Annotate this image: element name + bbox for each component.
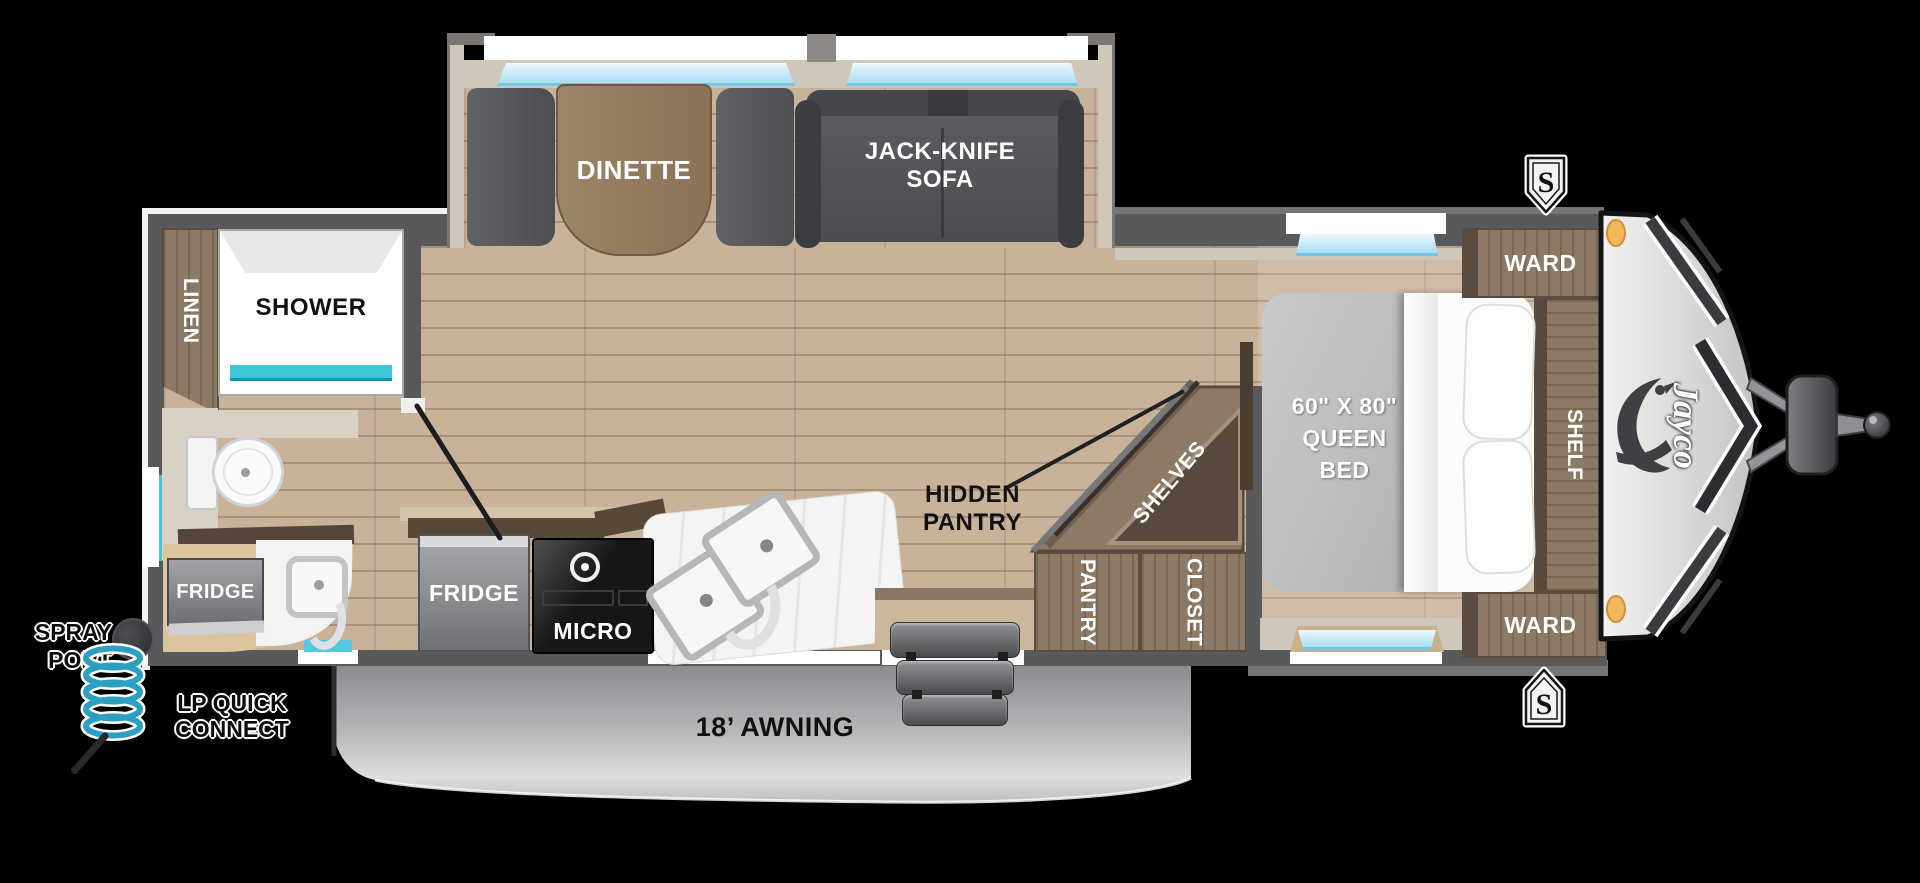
- front-cap: [1590, 200, 1920, 660]
- bed-pillow-bottom: [1462, 439, 1537, 575]
- slideout-window-right-glass: [846, 63, 1078, 86]
- bedroom-window-top-glass: [1296, 234, 1438, 256]
- bath-window-bottom-trim: [298, 650, 358, 664]
- wardrobe-bottom-label: WARD: [1492, 612, 1576, 639]
- shower-label-box: SHOWER: [230, 293, 392, 323]
- speaker-badge-bottom-letter: S: [1536, 688, 1553, 721]
- bedroom-window-lower-trim: [1290, 652, 1442, 664]
- bath-floor-strip: [218, 410, 358, 438]
- wardrobe-bottom-edge: [1464, 594, 1478, 656]
- micro-label: MICRO: [553, 618, 632, 645]
- hitch-assembly: [1747, 376, 1890, 474]
- lp-line2: CONNECT: [152, 716, 312, 742]
- pantry-cabinet: PANTRY: [1034, 552, 1140, 652]
- dinette-table: DINETTE: [556, 84, 712, 256]
- shelf-board-edge: [1536, 300, 1547, 590]
- step-tab-2: [998, 652, 1008, 661]
- bed-label-bed: BED: [1319, 454, 1369, 486]
- lp-quick-connect-label: LP QUICK CONNECT: [152, 690, 312, 742]
- linen-cabinet: LINEN: [162, 228, 219, 414]
- kitchen-fridge-label: FRIDGE: [429, 580, 519, 607]
- bed-label-box: 60" X 80" QUEEN BED: [1272, 388, 1417, 488]
- step-tab-4: [992, 690, 1002, 699]
- sofa-label-line1: JACK-KNIFE: [865, 138, 1015, 166]
- slideout-wall-right: [1098, 33, 1115, 248]
- pantry-label: PANTRY: [1075, 559, 1099, 646]
- propane-cover: [1787, 376, 1837, 474]
- marker-light-bottom: [1607, 596, 1625, 622]
- sink-drain-left: [697, 591, 715, 609]
- hidden-pantry-label: HIDDEN PANTRY: [915, 481, 1030, 537]
- marker-light-top: [1607, 220, 1625, 246]
- griddle-slot-left: [542, 590, 614, 606]
- toilet-bowl: [212, 437, 284, 507]
- slideout-wall-left: [447, 33, 464, 248]
- step-tab-1: [906, 652, 916, 661]
- burner-icon: [570, 552, 600, 582]
- wardrobe-top: WARD: [1462, 228, 1607, 298]
- slideout-window-left-glass: [497, 63, 795, 86]
- bath-door-jamb: [401, 398, 425, 413]
- kitchen-fridge-top-trim: [420, 536, 528, 547]
- jayco-logo-text: Jayco: [1662, 356, 1710, 496]
- wardrobe-bottom: WARD: [1462, 592, 1607, 658]
- shower-threshold: [230, 365, 392, 381]
- hidden-pantry-line1: HIDDEN: [925, 481, 1020, 509]
- griddle-slot-right: [618, 590, 648, 606]
- bed-label-size: 60" X 80": [1292, 390, 1398, 422]
- range-micro: MICRO: [532, 538, 654, 654]
- closet-cabinet: CLOSET: [1140, 552, 1247, 652]
- bath-window-left-trim: [143, 467, 159, 567]
- bed-side-board: [1240, 342, 1253, 490]
- dinette-bench-left: [467, 88, 555, 246]
- bedroom-window-top-trim: [1286, 213, 1446, 234]
- dinette-bench-right: [716, 88, 794, 246]
- lp-line1: LP QUICK: [152, 690, 312, 716]
- floorplan-canvas: 18’ AWNING DINETTE JACK-KNIFE SOFA: [0, 0, 1920, 883]
- dinette-label: DINETTE: [577, 155, 692, 186]
- speaker-badge-top-letter: S: [1538, 166, 1555, 199]
- sofa-arm-right: [1058, 100, 1084, 248]
- toilet-drain: [241, 468, 250, 477]
- shower-label: SHOWER: [256, 294, 367, 322]
- burner-center: [581, 563, 589, 571]
- lp-hose-coil-icon: [55, 640, 165, 780]
- bath-fridge-label: FRIDGE: [176, 581, 255, 604]
- bed-label-queen: QUEEN: [1302, 422, 1386, 454]
- sofa-arm-left: [795, 100, 821, 248]
- wardrobe-top-label: WARD: [1492, 250, 1576, 277]
- shower: SHOWER: [218, 229, 404, 396]
- kitchen-fridge: FRIDGE: [418, 534, 530, 652]
- bed-pillow-top: [1462, 303, 1537, 441]
- hitch-ball: [1864, 412, 1890, 438]
- sofa-label: JACK-KNIFE SOFA: [850, 136, 1030, 196]
- bath-fridge: FRIDGE: [167, 558, 264, 626]
- shelf-label: SHELF: [1552, 409, 1586, 480]
- bath-wall: [404, 229, 421, 401]
- speaker-badge-top: S: [1524, 154, 1568, 218]
- awning-label: 18’ AWNING: [650, 712, 900, 742]
- speaker-badge-bottom: S: [1522, 664, 1566, 728]
- hidden-pantry-line2: PANTRY: [923, 509, 1022, 537]
- sink-drain-right: [758, 537, 776, 555]
- shower-bevel: [220, 231, 402, 273]
- bedroom-window-bottom-glass: [1298, 630, 1436, 650]
- closet-label: CLOSET: [1182, 558, 1206, 646]
- slideout-window-mullion: [807, 34, 836, 62]
- vanity-sink-drain: [314, 580, 324, 590]
- micro-label-box: MICRO: [534, 616, 652, 646]
- wardrobe-top-edge: [1464, 230, 1478, 296]
- sofa-label-line2: SOFA: [906, 166, 973, 194]
- slideout-window-right-trim: [836, 36, 1088, 60]
- linen-label: LINEN: [178, 278, 202, 344]
- slideout-window-left-trim: [484, 36, 807, 60]
- step-tab-3: [912, 690, 922, 699]
